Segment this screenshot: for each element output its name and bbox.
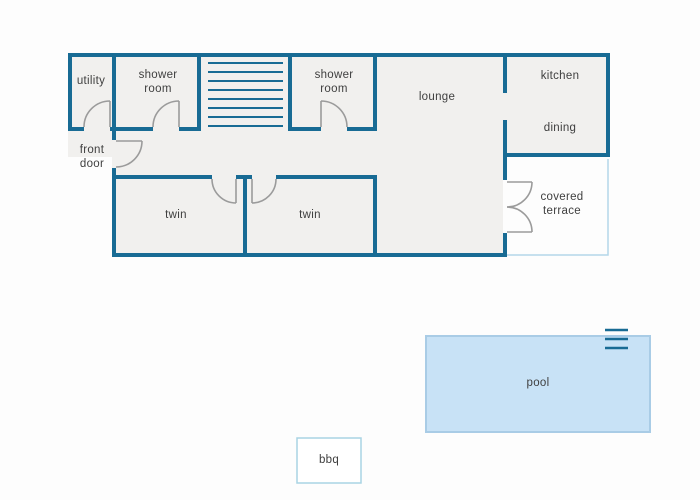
wall-segment — [503, 120, 507, 157]
wall-segment — [503, 153, 610, 157]
wall-segment — [112, 53, 116, 131]
wall-segment — [112, 175, 212, 179]
wall-segment — [112, 253, 503, 257]
label-front-door: front door — [71, 144, 113, 172]
wall-segment — [503, 53, 507, 93]
label-pool: pool — [527, 377, 550, 391]
wall-segment — [503, 233, 507, 257]
room-label-shower-room-1: shower room — [132, 69, 184, 97]
room-label-shower-room-2: shower room — [308, 69, 360, 97]
terrace-french-door-top-icon — [507, 182, 532, 207]
wall-segment — [68, 127, 84, 131]
wall-segment — [292, 127, 321, 131]
room-label-kitchen: kitchen — [541, 70, 580, 84]
wall-segment — [243, 179, 247, 253]
wall-segment — [179, 127, 201, 131]
terrace-french-door-bottom-icon — [507, 207, 532, 232]
wall-segment — [68, 53, 610, 57]
wall-segment — [197, 53, 201, 131]
wall-segment — [606, 53, 610, 157]
wall-segment — [68, 53, 72, 131]
room-label-dining: dining — [544, 122, 577, 136]
label-bbq: bbq — [319, 454, 339, 468]
wall-segment — [503, 157, 507, 180]
room-label-twin-1: twin — [165, 209, 187, 223]
wall-segment — [276, 175, 373, 179]
wall-segment — [112, 131, 116, 140]
wall-segment — [112, 168, 116, 257]
floor-plan: utility shower room shower room lounge k… — [0, 0, 700, 500]
room-label-utility: utility — [77, 75, 105, 89]
wall-segment — [110, 127, 153, 131]
wall-segment — [347, 127, 377, 131]
wall-segment — [373, 175, 377, 257]
wall-segment — [236, 175, 252, 179]
wall-segment — [288, 53, 292, 131]
room-label-lounge: lounge — [419, 91, 455, 105]
room-label-twin-2: twin — [299, 209, 321, 223]
label-covered-terrace: covered terrace — [530, 191, 594, 219]
wall-segment — [373, 53, 377, 131]
